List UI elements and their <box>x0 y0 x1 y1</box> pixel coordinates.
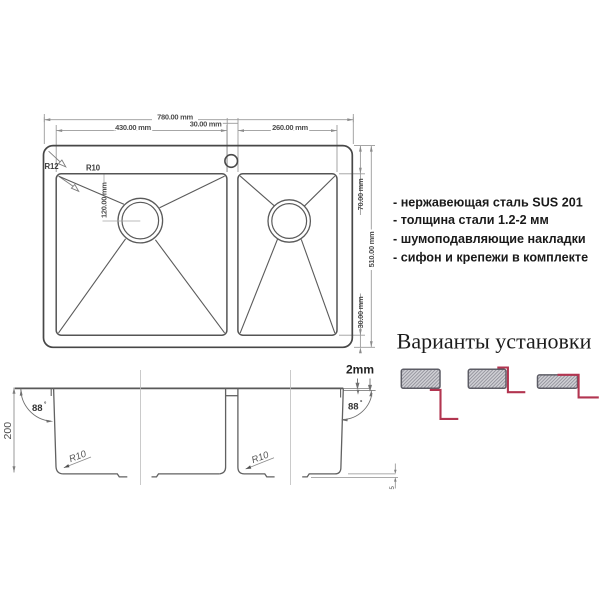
svg-text:2mm: 2mm <box>346 363 374 377</box>
svg-text:200: 200 <box>2 422 14 440</box>
svg-text:510.00 mm: 510.00 mm <box>367 231 376 267</box>
svg-text:88: 88 <box>32 403 43 414</box>
svg-text:R10: R10 <box>250 449 271 466</box>
svg-text:R10: R10 <box>86 164 101 173</box>
svg-text:- толщина стали 1.2-2 мм: - толщина стали 1.2-2 мм <box>393 213 549 227</box>
svg-text:430.00 mm: 430.00 mm <box>115 123 151 132</box>
svg-text:120.00 mm: 120.00 mm <box>100 182 109 218</box>
svg-text:30.00 mm: 30.00 mm <box>356 296 365 328</box>
svg-text:260.00 mm: 260.00 mm <box>272 123 308 132</box>
svg-text:R10: R10 <box>68 448 89 465</box>
svg-text:88: 88 <box>348 402 359 413</box>
svg-text:- сифон и крепежи в комплекте: - сифон и крепежи в комплекте <box>393 250 588 264</box>
svg-text:- нержавеющая сталь SUS 201: - нержавеющая сталь SUS 201 <box>393 196 583 210</box>
svg-text:780.00 mm: 780.00 mm <box>157 113 193 122</box>
svg-text:R12: R12 <box>45 162 60 171</box>
svg-text:30.00 mm: 30.00 mm <box>190 120 222 129</box>
svg-text:- шумоподавляющие накладки: - шумоподавляющие накладки <box>393 232 586 246</box>
svg-text:°: ° <box>44 402 47 408</box>
svg-text:°: ° <box>360 401 363 407</box>
svg-text:70.00 mm: 70.00 mm <box>356 178 365 210</box>
svg-text:Варианты установки: Варианты установки <box>397 328 592 353</box>
